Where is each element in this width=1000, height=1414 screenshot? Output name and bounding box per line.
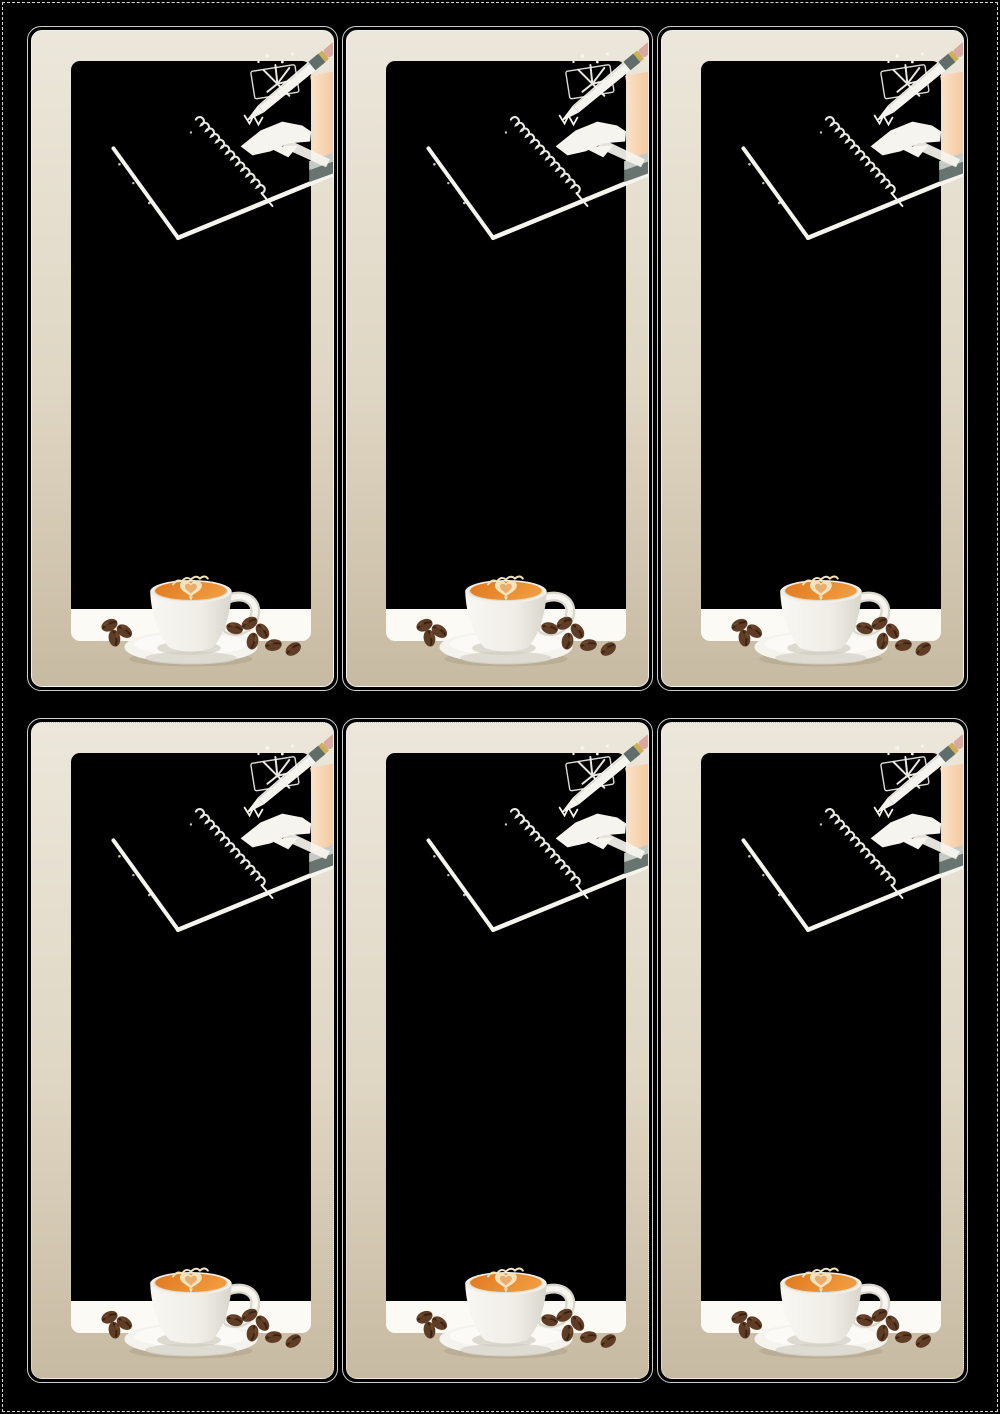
- card-frame: [31, 722, 334, 1379]
- bookmark-card-4: [27, 718, 338, 1383]
- bookmark-card-3: [657, 26, 968, 691]
- bookmark-artwork: [347, 723, 648, 1378]
- bookmark-card-2: [342, 26, 653, 691]
- bookmark-card-5: [342, 718, 653, 1383]
- bookmark-artwork: [662, 723, 963, 1378]
- bookmark-sheet: [0, 0, 1000, 1414]
- bookmark-artwork: [32, 31, 333, 686]
- bookmark-card-6: [657, 718, 968, 1383]
- card-frame: [31, 30, 334, 687]
- bookmark-artwork: [662, 31, 963, 686]
- bookmark-artwork: [32, 723, 333, 1378]
- bookmark-grid: [27, 26, 968, 1383]
- card-frame: [346, 30, 649, 687]
- card-frame: [661, 722, 964, 1379]
- card-frame: [661, 30, 964, 687]
- card-frame: [346, 722, 649, 1379]
- bookmark-artwork: [347, 31, 648, 686]
- bookmark-card-1: [27, 26, 338, 691]
